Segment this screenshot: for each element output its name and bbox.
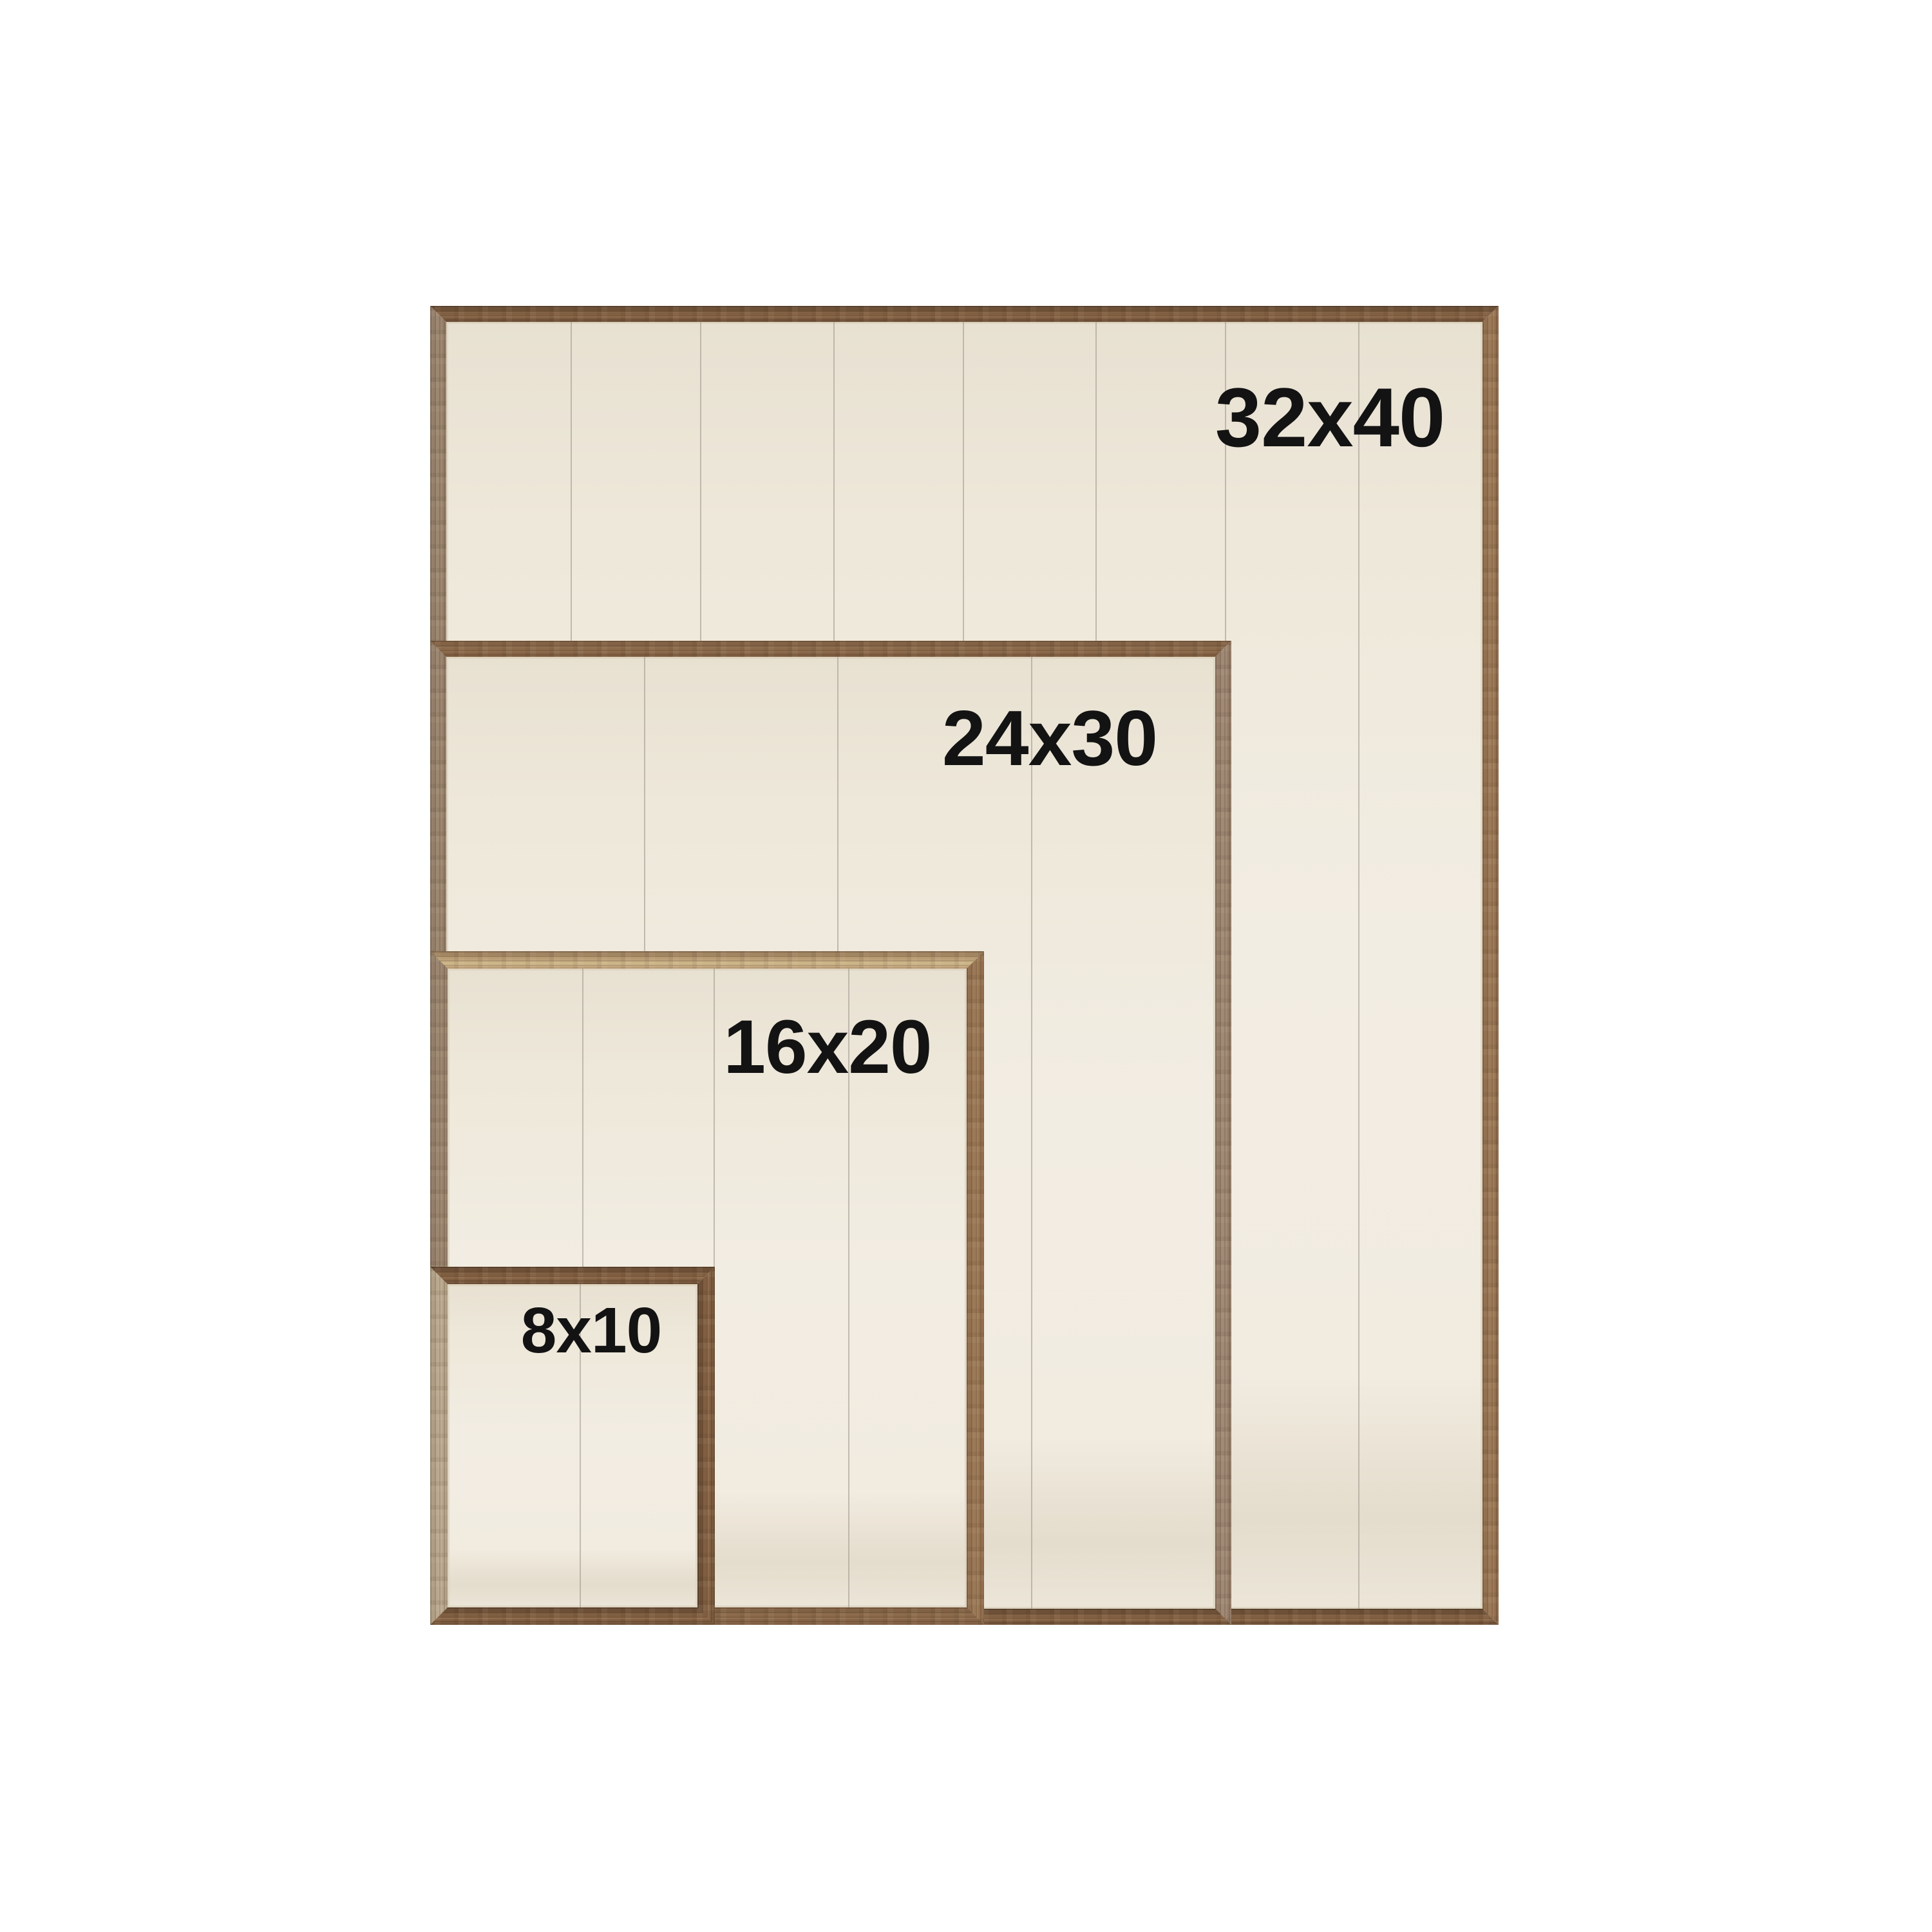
frame-8x10: 8x10 [430,1267,715,1625]
frame-wood-right [697,1267,715,1625]
frame-wood-top [430,306,1499,322]
size-label: 24x30 [942,699,1157,777]
plank-seam [1031,657,1032,1609]
frame-wood-top [430,1267,715,1284]
page: { "image": { "kind": "picture-frame size… [0,0,1932,1932]
frame-wood-top [430,951,984,969]
frame-wood-top [430,641,1231,657]
frame-wood-right [1482,306,1499,1625]
frame-wood-left [430,1267,448,1625]
plank-seam [1358,322,1359,1609]
frame-wood-right [967,951,984,1625]
size-label: 16x20 [723,1009,931,1085]
frame-wood-right [1215,641,1231,1625]
size-label: 8x10 [521,1298,661,1363]
frame-size-chart: 32x4024x3016x208x10 [0,0,1932,1932]
size-label: 32x40 [1215,375,1445,459]
frame-wood-bottom [430,1607,715,1625]
